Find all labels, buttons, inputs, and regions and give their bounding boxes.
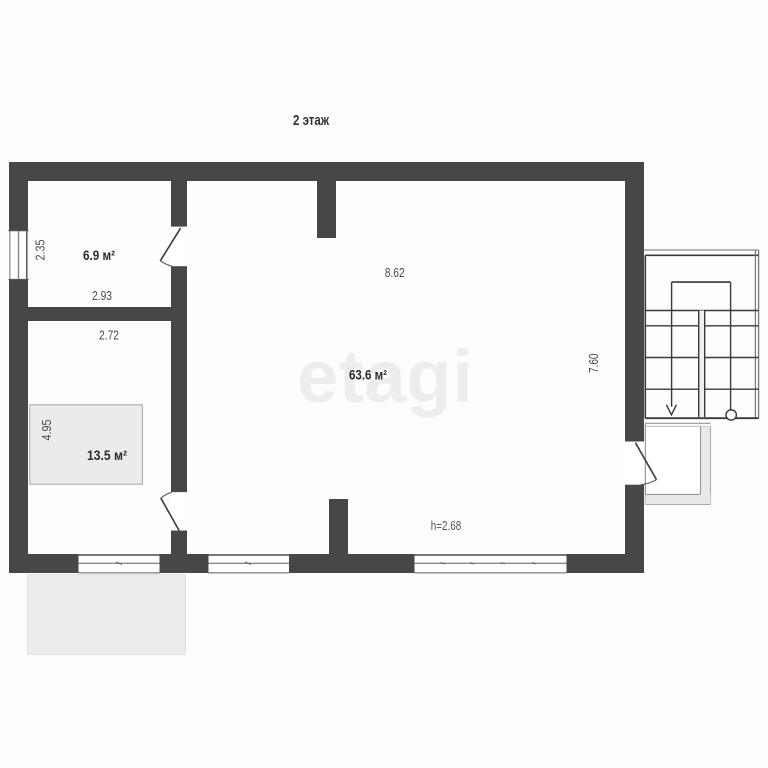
svg-text:8.62: 8.62 xyxy=(385,266,405,280)
svg-text:h=2.68: h=2.68 xyxy=(431,519,462,533)
svg-text:2 этаж: 2 этаж xyxy=(293,113,330,129)
svg-text:2.72: 2.72 xyxy=(99,329,119,343)
svg-text:7.60: 7.60 xyxy=(587,353,601,373)
svg-text:4.95: 4.95 xyxy=(40,419,54,440)
svg-text:2.93: 2.93 xyxy=(92,289,112,303)
svg-text:2.35: 2.35 xyxy=(34,239,48,260)
svg-text:13.5 м²: 13.5 м² xyxy=(87,447,127,463)
svg-text:6.9 м²: 6.9 м² xyxy=(83,247,115,263)
svg-text:63.6 м²: 63.6 м² xyxy=(349,367,387,383)
